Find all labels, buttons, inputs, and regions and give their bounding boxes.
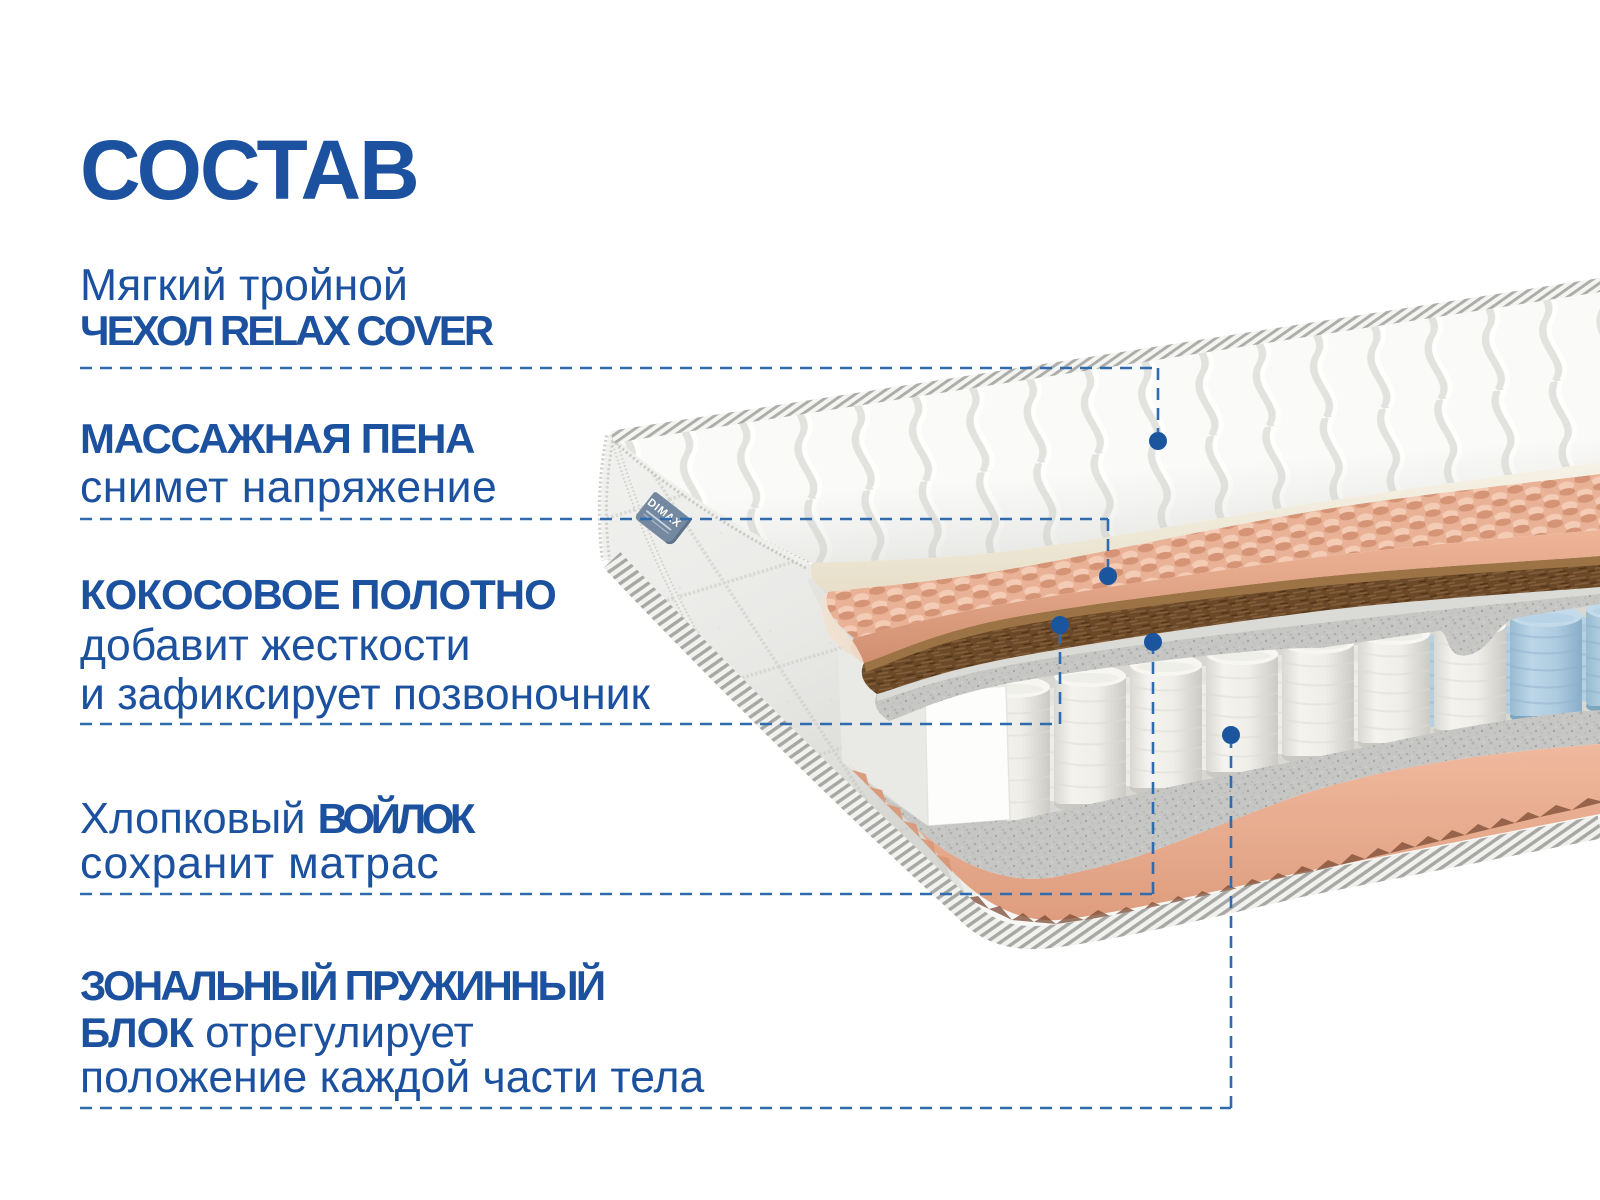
svg-text:ЧЕХОЛ RELAX COVER: ЧЕХОЛ RELAX COVER — [80, 307, 494, 354]
svg-text:снимет напряжение: снимет напряжение — [80, 463, 497, 512]
svg-text:СОСТАВ: СОСТАВ — [80, 123, 418, 217]
svg-text:положение каждой части тела: положение каждой части тела — [80, 1053, 704, 1102]
svg-text:БЛОК отрегулирует: БЛОК отрегулирует — [80, 1008, 474, 1057]
svg-text:сохранит матрас: сохранит матрас — [80, 839, 439, 888]
svg-text:ЗОНАЛЬНЫЙ ПРУЖИННЫЙ: ЗОНАЛЬНЫЙ ПРУЖИННЫЙ — [80, 961, 604, 1009]
svg-text:добавит жесткости: добавит жесткости — [80, 621, 471, 670]
svg-text:и зафиксирует позвоночник: и зафиксирует позвоночник — [80, 670, 651, 719]
svg-text:КОКОСОВОЕ ПОЛОТНО: КОКОСОВОЕ ПОЛОТНО — [80, 571, 556, 618]
svg-text:МАССАЖНАЯ ПЕНА: МАССАЖНАЯ ПЕНА — [80, 415, 475, 462]
svg-text:Хлопковый ВОЙЛОК: Хлопковый ВОЙЛОК — [80, 794, 476, 843]
svg-text:Мягкий тройной: Мягкий тройной — [80, 261, 408, 310]
